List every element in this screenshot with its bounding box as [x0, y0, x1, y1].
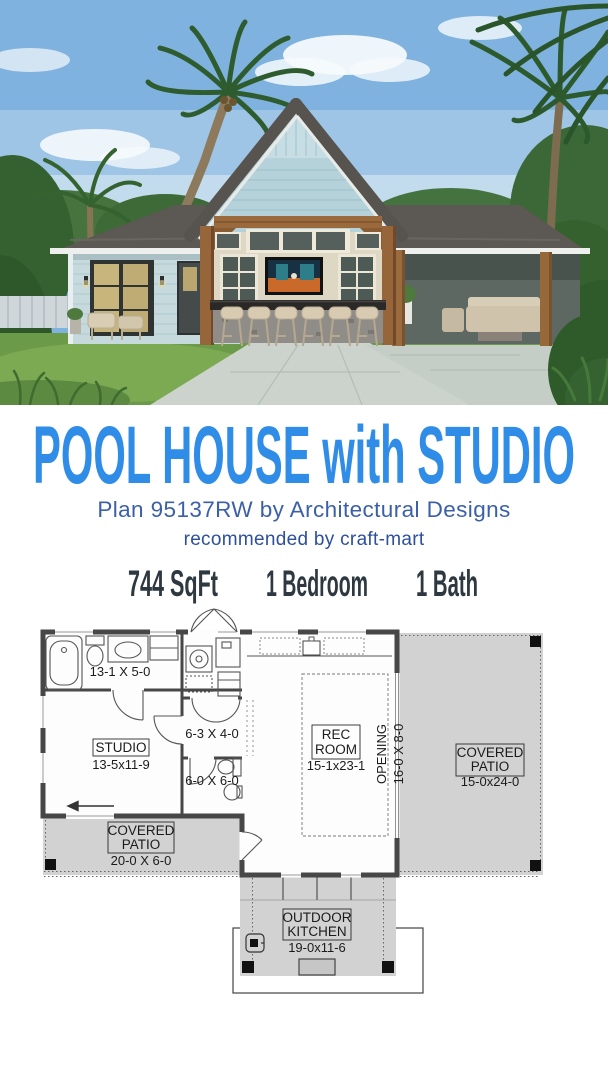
patio-left-label-2: PATIO	[122, 837, 161, 852]
stats-row: 744 SqFt 1 Bedroom 1 Bath	[0, 562, 608, 608]
patio-left-dim-label: 20-0 X 6-0	[111, 853, 172, 868]
side-door	[178, 262, 202, 334]
patio-right-dim-label: 15-0x24-0	[461, 774, 520, 789]
opening-dim-label: 16-0 X 8-0	[391, 724, 406, 785]
rec-room-dim-label: 15-1x23-1	[307, 758, 366, 773]
plan-subtitle: Plan 95137RW by Architectural Designs	[0, 497, 608, 523]
outdoor-kitchen-label-1: OUTDOOR	[283, 910, 352, 925]
floor-plan-drawing: 13-1 X 5-0 STUDIO 13-5x11-9 6-3 X 4-0 6-…	[0, 608, 608, 1080]
pin-title-text: POOL HOUSE with STUDIO	[33, 419, 575, 495]
patio-right-label-2: PATIO	[471, 759, 510, 774]
tall-window-left	[220, 254, 258, 306]
fence	[0, 296, 72, 328]
tv-screen	[265, 257, 323, 295]
stat-sqft: 744 SqFt	[128, 563, 218, 604]
hero-photo	[0, 0, 608, 405]
opening-label: OPENING	[374, 724, 389, 784]
attribution-line: recommended by craft-mart	[0, 529, 608, 551]
patio-right-label-1: COVERED	[457, 745, 524, 760]
studio-label: STUDIO	[95, 740, 146, 755]
hall-dim-label: 6-3 X 4-0	[185, 726, 238, 741]
powder-dim-label: 6-0 X 6-0	[185, 773, 238, 788]
outdoor-kitchen-label-2: KITCHEN	[287, 924, 346, 939]
pin-title: POOL HOUSE with STUDIO	[0, 419, 608, 495]
kitchen-island	[299, 959, 335, 975]
patio-left-label-1: COVERED	[108, 823, 175, 838]
grill-icon	[246, 934, 264, 952]
studio-dim-label: 13-5x11-9	[92, 757, 150, 772]
bath-dim-label: 13-1 X 5-0	[90, 664, 151, 679]
stat-bedrooms: 1 Bedroom	[266, 563, 368, 604]
tall-window-right	[338, 254, 376, 306]
rec-room-label-1: REC	[322, 727, 351, 742]
rec-room-label-2: ROOM	[315, 742, 357, 757]
outdoor-kitchen-dim-label: 19-0x11-6	[288, 940, 346, 955]
right-wing-patio	[392, 250, 580, 346]
pin-page: POOL HOUSE with STUDIO Plan 95137RW by A…	[0, 0, 608, 1080]
stat-baths: 1 Bath	[416, 563, 478, 604]
